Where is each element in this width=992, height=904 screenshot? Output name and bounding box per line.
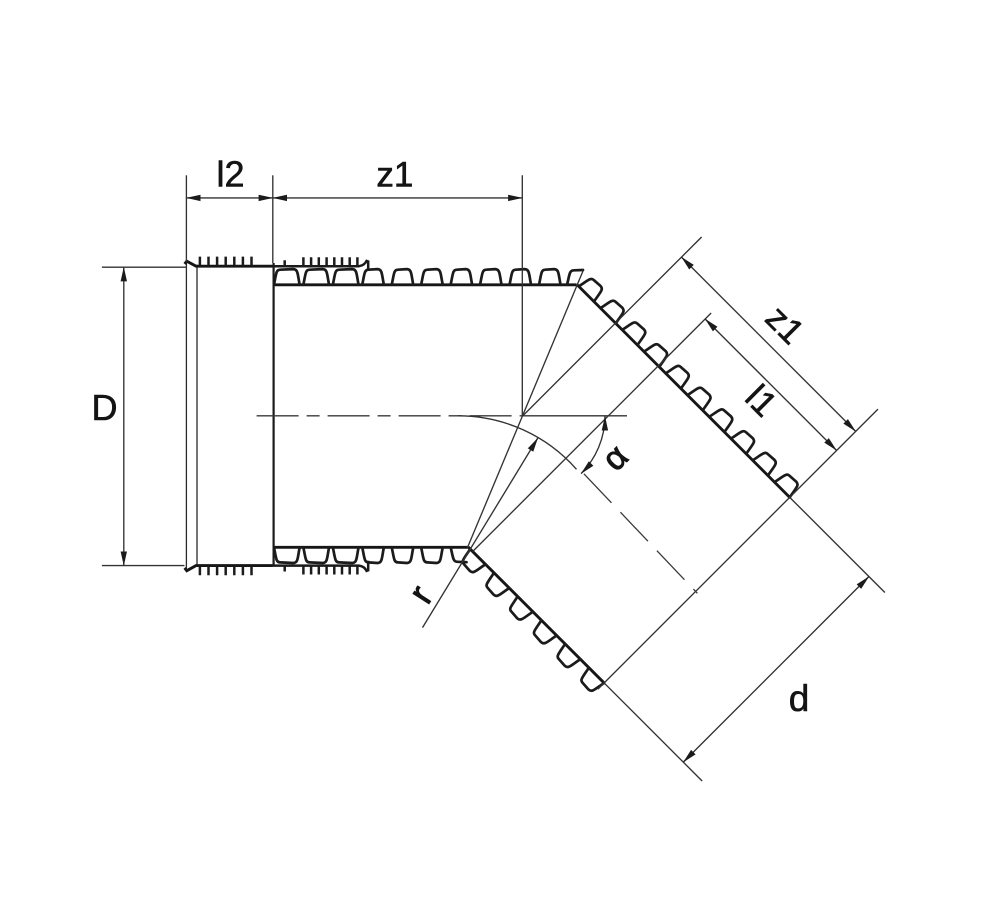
svg-text:z1: z1 — [376, 156, 413, 195]
svg-text:D: D — [92, 387, 118, 428]
svg-text:l2: l2 — [216, 154, 244, 195]
svg-text:d: d — [789, 678, 810, 719]
